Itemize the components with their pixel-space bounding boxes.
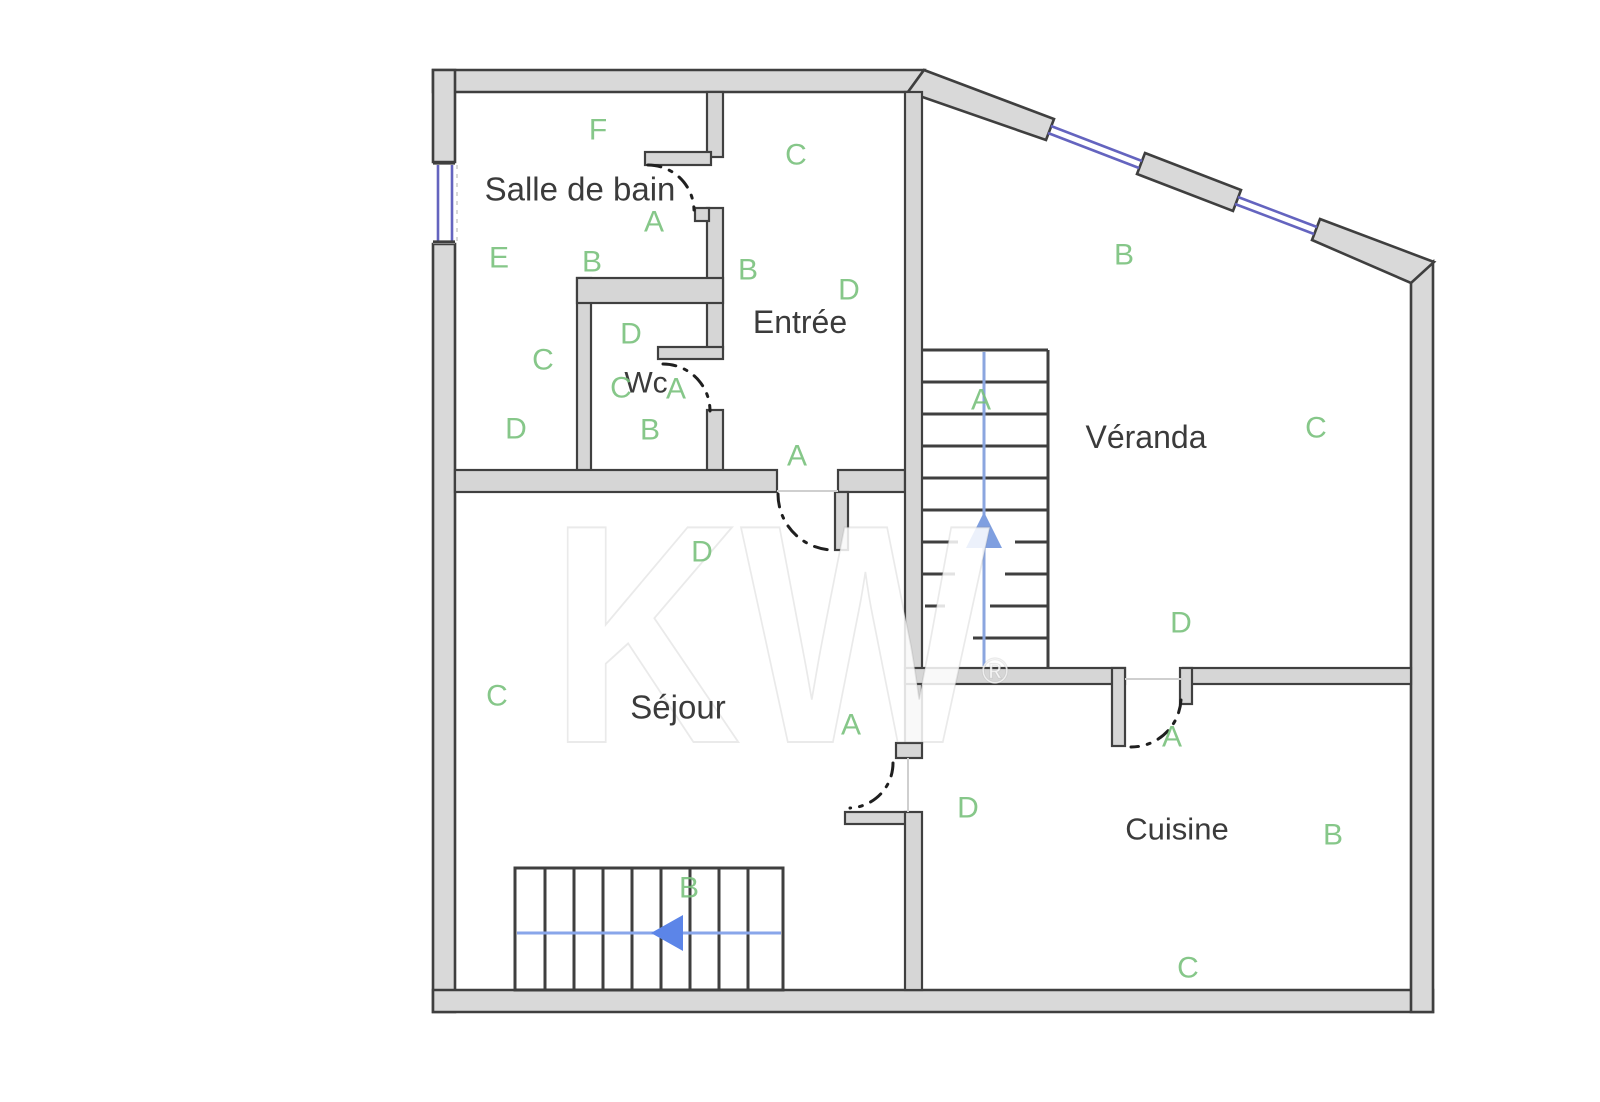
plan-letter-label: A xyxy=(644,206,664,239)
inner-wall-bath-entry-wall-foot xyxy=(695,208,709,221)
room-label: Entrée xyxy=(753,304,847,340)
room-label: Cuisine xyxy=(1125,812,1228,847)
plan-letter-label: D xyxy=(505,413,527,446)
inner-wall-cuisine-door-stub-right xyxy=(1180,668,1192,704)
floorplan-svg: KW®Salle de bainWcEntréeSéjourVérandaCui… xyxy=(0,0,1600,1102)
plan-letter-label: A xyxy=(1162,721,1182,754)
plan-letter-label: D xyxy=(957,792,979,825)
inner-wall-veranda-cuisine-wall-right xyxy=(1183,668,1411,684)
watermark-text: KW xyxy=(550,461,992,809)
room-label: Véranda xyxy=(1086,419,1207,455)
outer-wall-bottom-wall xyxy=(433,990,1433,1012)
plan-letter-label: A xyxy=(971,384,991,417)
plan-letter-label: A xyxy=(666,373,686,406)
room-label: Salle de bain xyxy=(485,171,676,208)
plan-letter-label: B xyxy=(1114,239,1134,272)
plan-letter-label: B xyxy=(1323,819,1343,852)
plan-letter-label: B xyxy=(582,246,602,279)
plan-letter-label: A xyxy=(841,709,861,742)
inner-wall-cuisine-door-stub-left xyxy=(1112,668,1125,746)
plan-letter-label: A xyxy=(787,440,807,473)
inner-wall-cuisine-door-stub-west xyxy=(845,812,907,824)
plan-letter-label: D xyxy=(1170,607,1192,640)
plan-letter-label: E xyxy=(489,242,509,275)
plan-letter-label: D xyxy=(691,536,713,569)
outer-wall-left-wall-upper xyxy=(433,70,455,162)
plan-letter-label: B xyxy=(640,414,660,447)
inner-wall-wc-left-wall xyxy=(577,278,591,472)
plan-letter-label: B xyxy=(738,254,758,287)
inner-wall-center-wall-lower xyxy=(905,812,922,990)
plan-letter-label: B xyxy=(679,872,699,905)
outer-wall-top-wall xyxy=(433,70,924,92)
plan-letter-label: F xyxy=(589,114,607,147)
room-label: Séjour xyxy=(630,689,725,726)
watermark-registered-mark: ® xyxy=(982,650,1009,691)
inner-wall-bath-door-stub xyxy=(645,152,711,165)
inner-wall-bath-entry-wall-top xyxy=(707,92,723,157)
outer-wall-right-wall xyxy=(1411,262,1433,1012)
plan-letter-label: C xyxy=(486,680,508,713)
plan-letter-label: C xyxy=(532,344,554,377)
plan-letter-label: C xyxy=(1177,952,1199,985)
plan-letter-label: C xyxy=(785,139,807,172)
inner-wall-wc-door-stub xyxy=(658,347,723,359)
plan-letter-label: D xyxy=(620,318,642,351)
plan-letter-label: C xyxy=(1305,412,1327,445)
plan-letter-label: C xyxy=(610,372,632,405)
watermark: KW® xyxy=(550,461,1008,809)
floorplan-canvas: KW®Salle de bainWcEntréeSéjourVérandaCui… xyxy=(0,0,1600,1102)
outer-wall-left-wall-lower xyxy=(433,244,455,1012)
plan-letter-label: D xyxy=(838,274,860,307)
inner-wall-wc-top-wall xyxy=(577,278,723,303)
